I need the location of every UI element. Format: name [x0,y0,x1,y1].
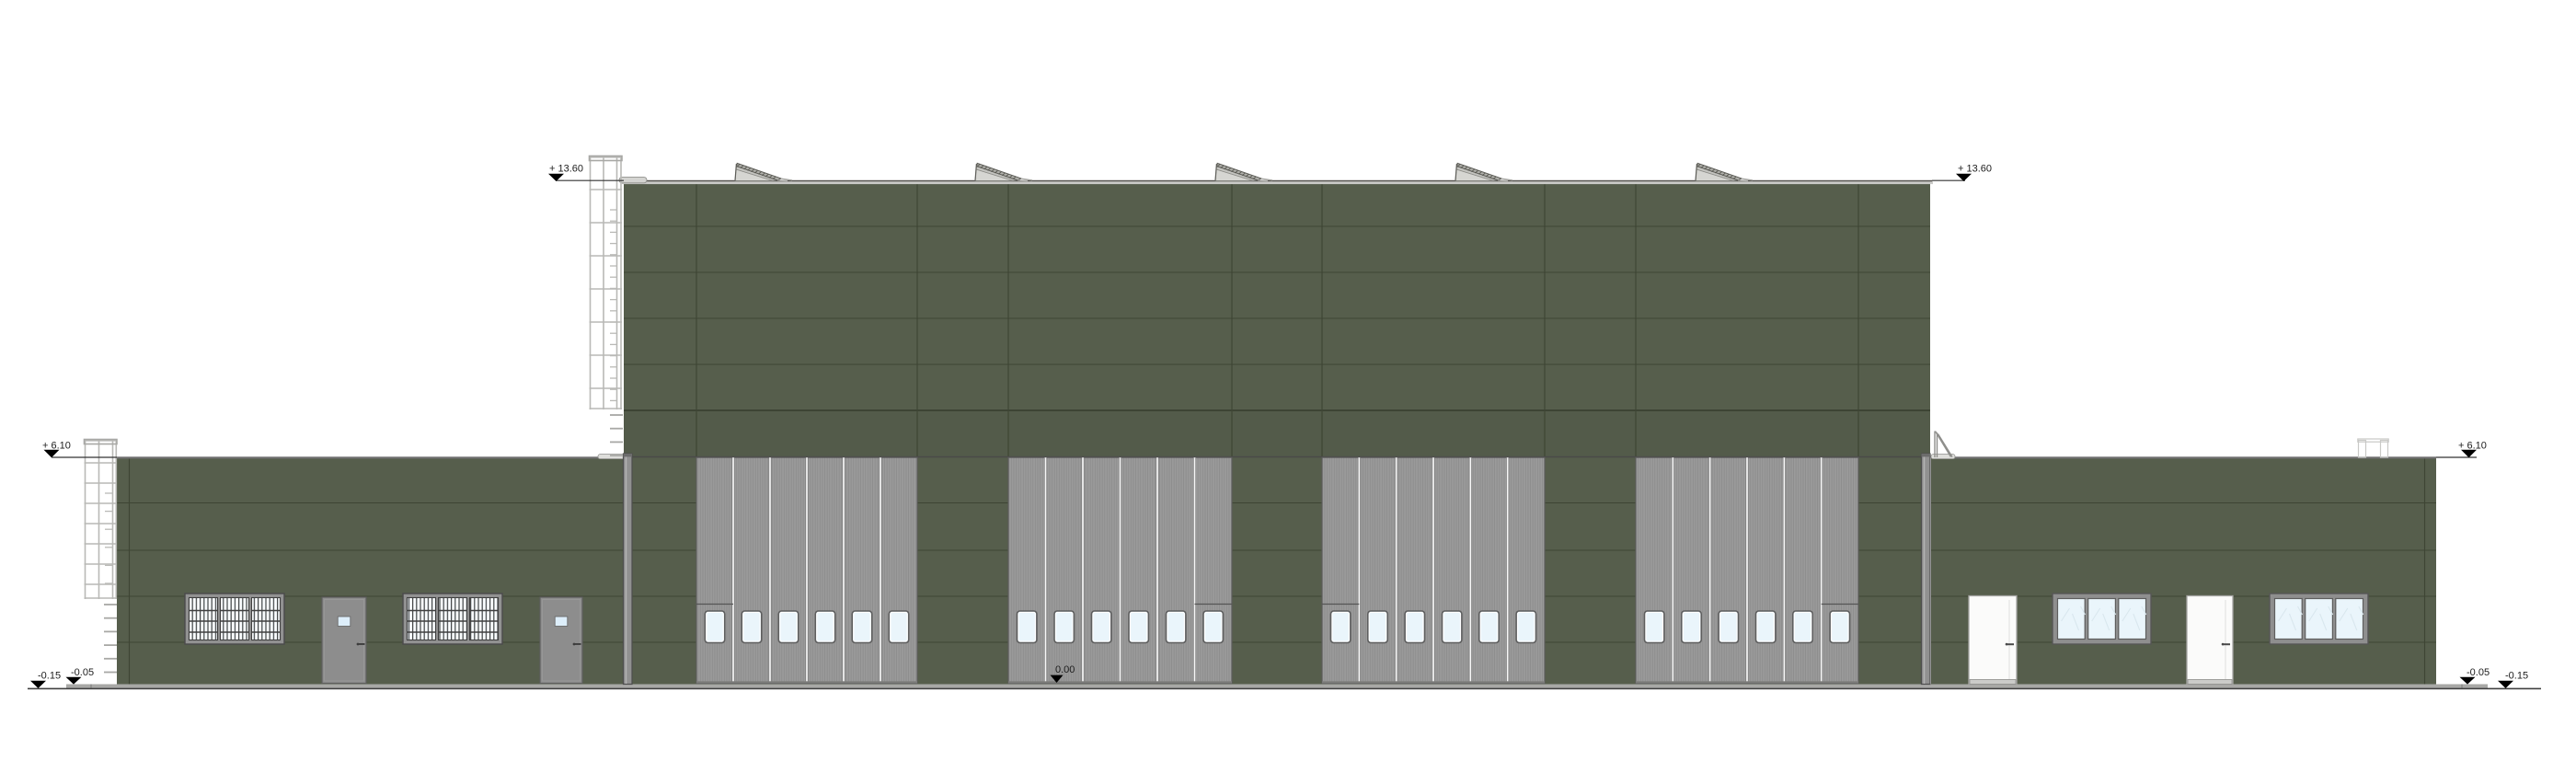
svg-text:+ 6.10: + 6.10 [42,440,71,451]
svg-text:+ 13.60: + 13.60 [1958,164,1992,175]
svg-text:-0.15: -0.15 [2505,671,2528,682]
svg-text:-0.15: -0.15 [38,671,61,682]
svg-text:-0.05: -0.05 [71,667,94,678]
svg-text:0.00: 0.00 [1055,664,1075,675]
svg-text:+ 6.10: + 6.10 [2458,440,2487,451]
svg-text:+ 13.60: + 13.60 [549,164,583,175]
svg-text:-0.05: -0.05 [2467,667,2490,678]
